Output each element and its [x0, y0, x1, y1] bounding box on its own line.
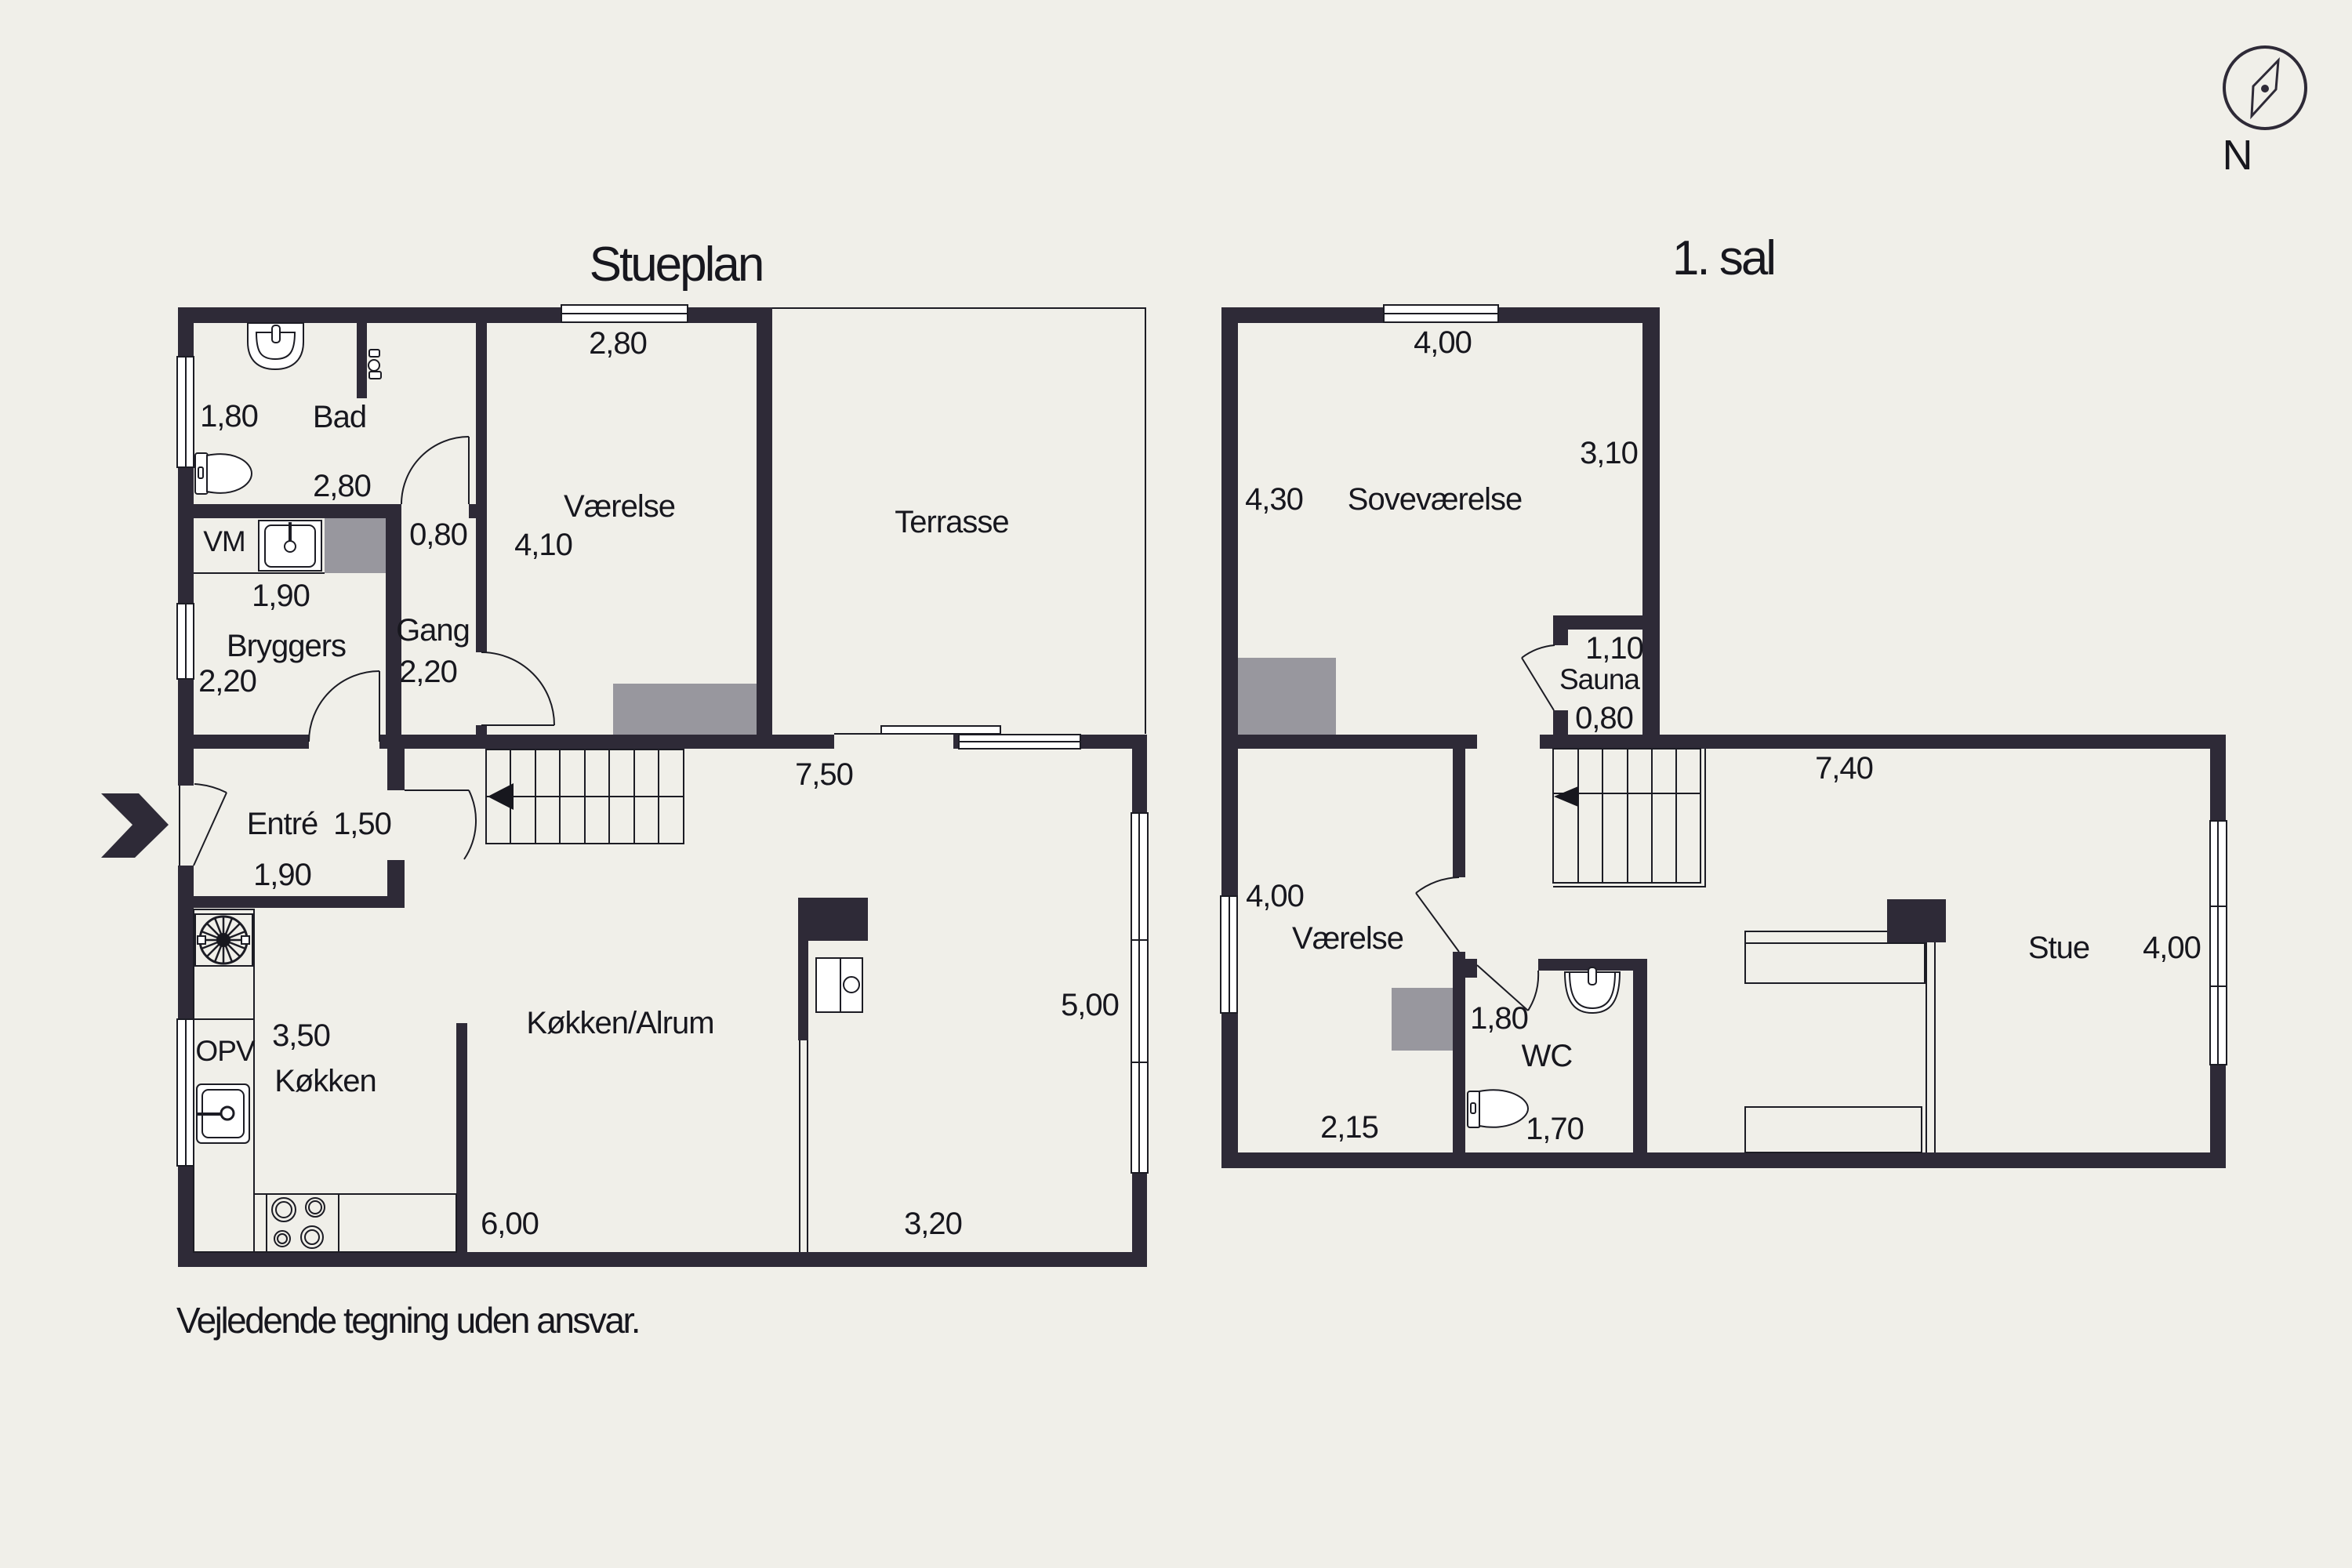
- svg-text:Vejledende tegning uden ansvar: Vejledende tegning uden ansvar.: [176, 1300, 639, 1341]
- svg-text:6,00: 6,00: [481, 1207, 539, 1241]
- svg-text:Stueplan: Stueplan: [590, 238, 763, 292]
- svg-text:4,00: 4,00: [1414, 325, 1472, 360]
- svg-text:4,30: 4,30: [1245, 482, 1303, 517]
- svg-text:0,80: 0,80: [1575, 701, 1633, 735]
- svg-text:7,50: 7,50: [795, 757, 853, 792]
- svg-text:Entré: Entré: [247, 807, 318, 841]
- svg-text:Værelse: Værelse: [1292, 921, 1403, 956]
- svg-text:WC: WC: [1522, 1039, 1573, 1073]
- svg-text:Værelse: Værelse: [564, 489, 675, 524]
- svg-text:N: N: [2223, 132, 2253, 179]
- svg-text:4,10: 4,10: [514, 528, 572, 562]
- svg-text:2,20: 2,20: [198, 664, 256, 699]
- svg-text:Køkken/Alrum: Køkken/Alrum: [526, 1006, 713, 1040]
- svg-text:5,00: 5,00: [1061, 988, 1119, 1022]
- svg-text:2,80: 2,80: [313, 469, 371, 503]
- svg-text:Terrasse: Terrasse: [895, 505, 1008, 539]
- svg-text:VM: VM: [203, 525, 245, 557]
- svg-text:Køkken: Køkken: [274, 1064, 376, 1098]
- svg-text:1,80: 1,80: [200, 399, 258, 434]
- svg-text:Gang: Gang: [396, 613, 470, 648]
- svg-text:Bryggers: Bryggers: [227, 629, 346, 663]
- svg-text:1,80: 1,80: [1470, 1001, 1528, 1036]
- svg-text:1,90: 1,90: [252, 579, 310, 613]
- svg-text:Soveværelse: Soveværelse: [1348, 482, 1522, 517]
- svg-text:Stue: Stue: [2028, 931, 2089, 965]
- svg-text:1. sal: 1. sal: [1672, 231, 1774, 285]
- svg-text:1,10: 1,10: [1585, 631, 1643, 666]
- svg-text:4,00: 4,00: [1246, 879, 1304, 913]
- svg-text:3,20: 3,20: [904, 1207, 962, 1241]
- svg-text:2,80: 2,80: [589, 326, 647, 361]
- svg-text:1,90: 1,90: [253, 858, 311, 892]
- svg-text:0,80: 0,80: [409, 517, 467, 552]
- svg-text:3,50: 3,50: [272, 1018, 330, 1053]
- svg-text:Bad: Bad: [313, 400, 366, 434]
- svg-text:Sauna: Sauna: [1559, 663, 1640, 695]
- svg-text:4,00: 4,00: [2143, 931, 2201, 965]
- svg-text:OPV: OPV: [195, 1035, 255, 1067]
- svg-text:2,20: 2,20: [399, 655, 457, 689]
- svg-text:3,10: 3,10: [1580, 436, 1638, 470]
- svg-text:1,50: 1,50: [333, 807, 391, 841]
- svg-text:7,40: 7,40: [1815, 751, 1873, 786]
- svg-text:2,15: 2,15: [1320, 1110, 1378, 1145]
- svg-text:1,70: 1,70: [1526, 1112, 1584, 1146]
